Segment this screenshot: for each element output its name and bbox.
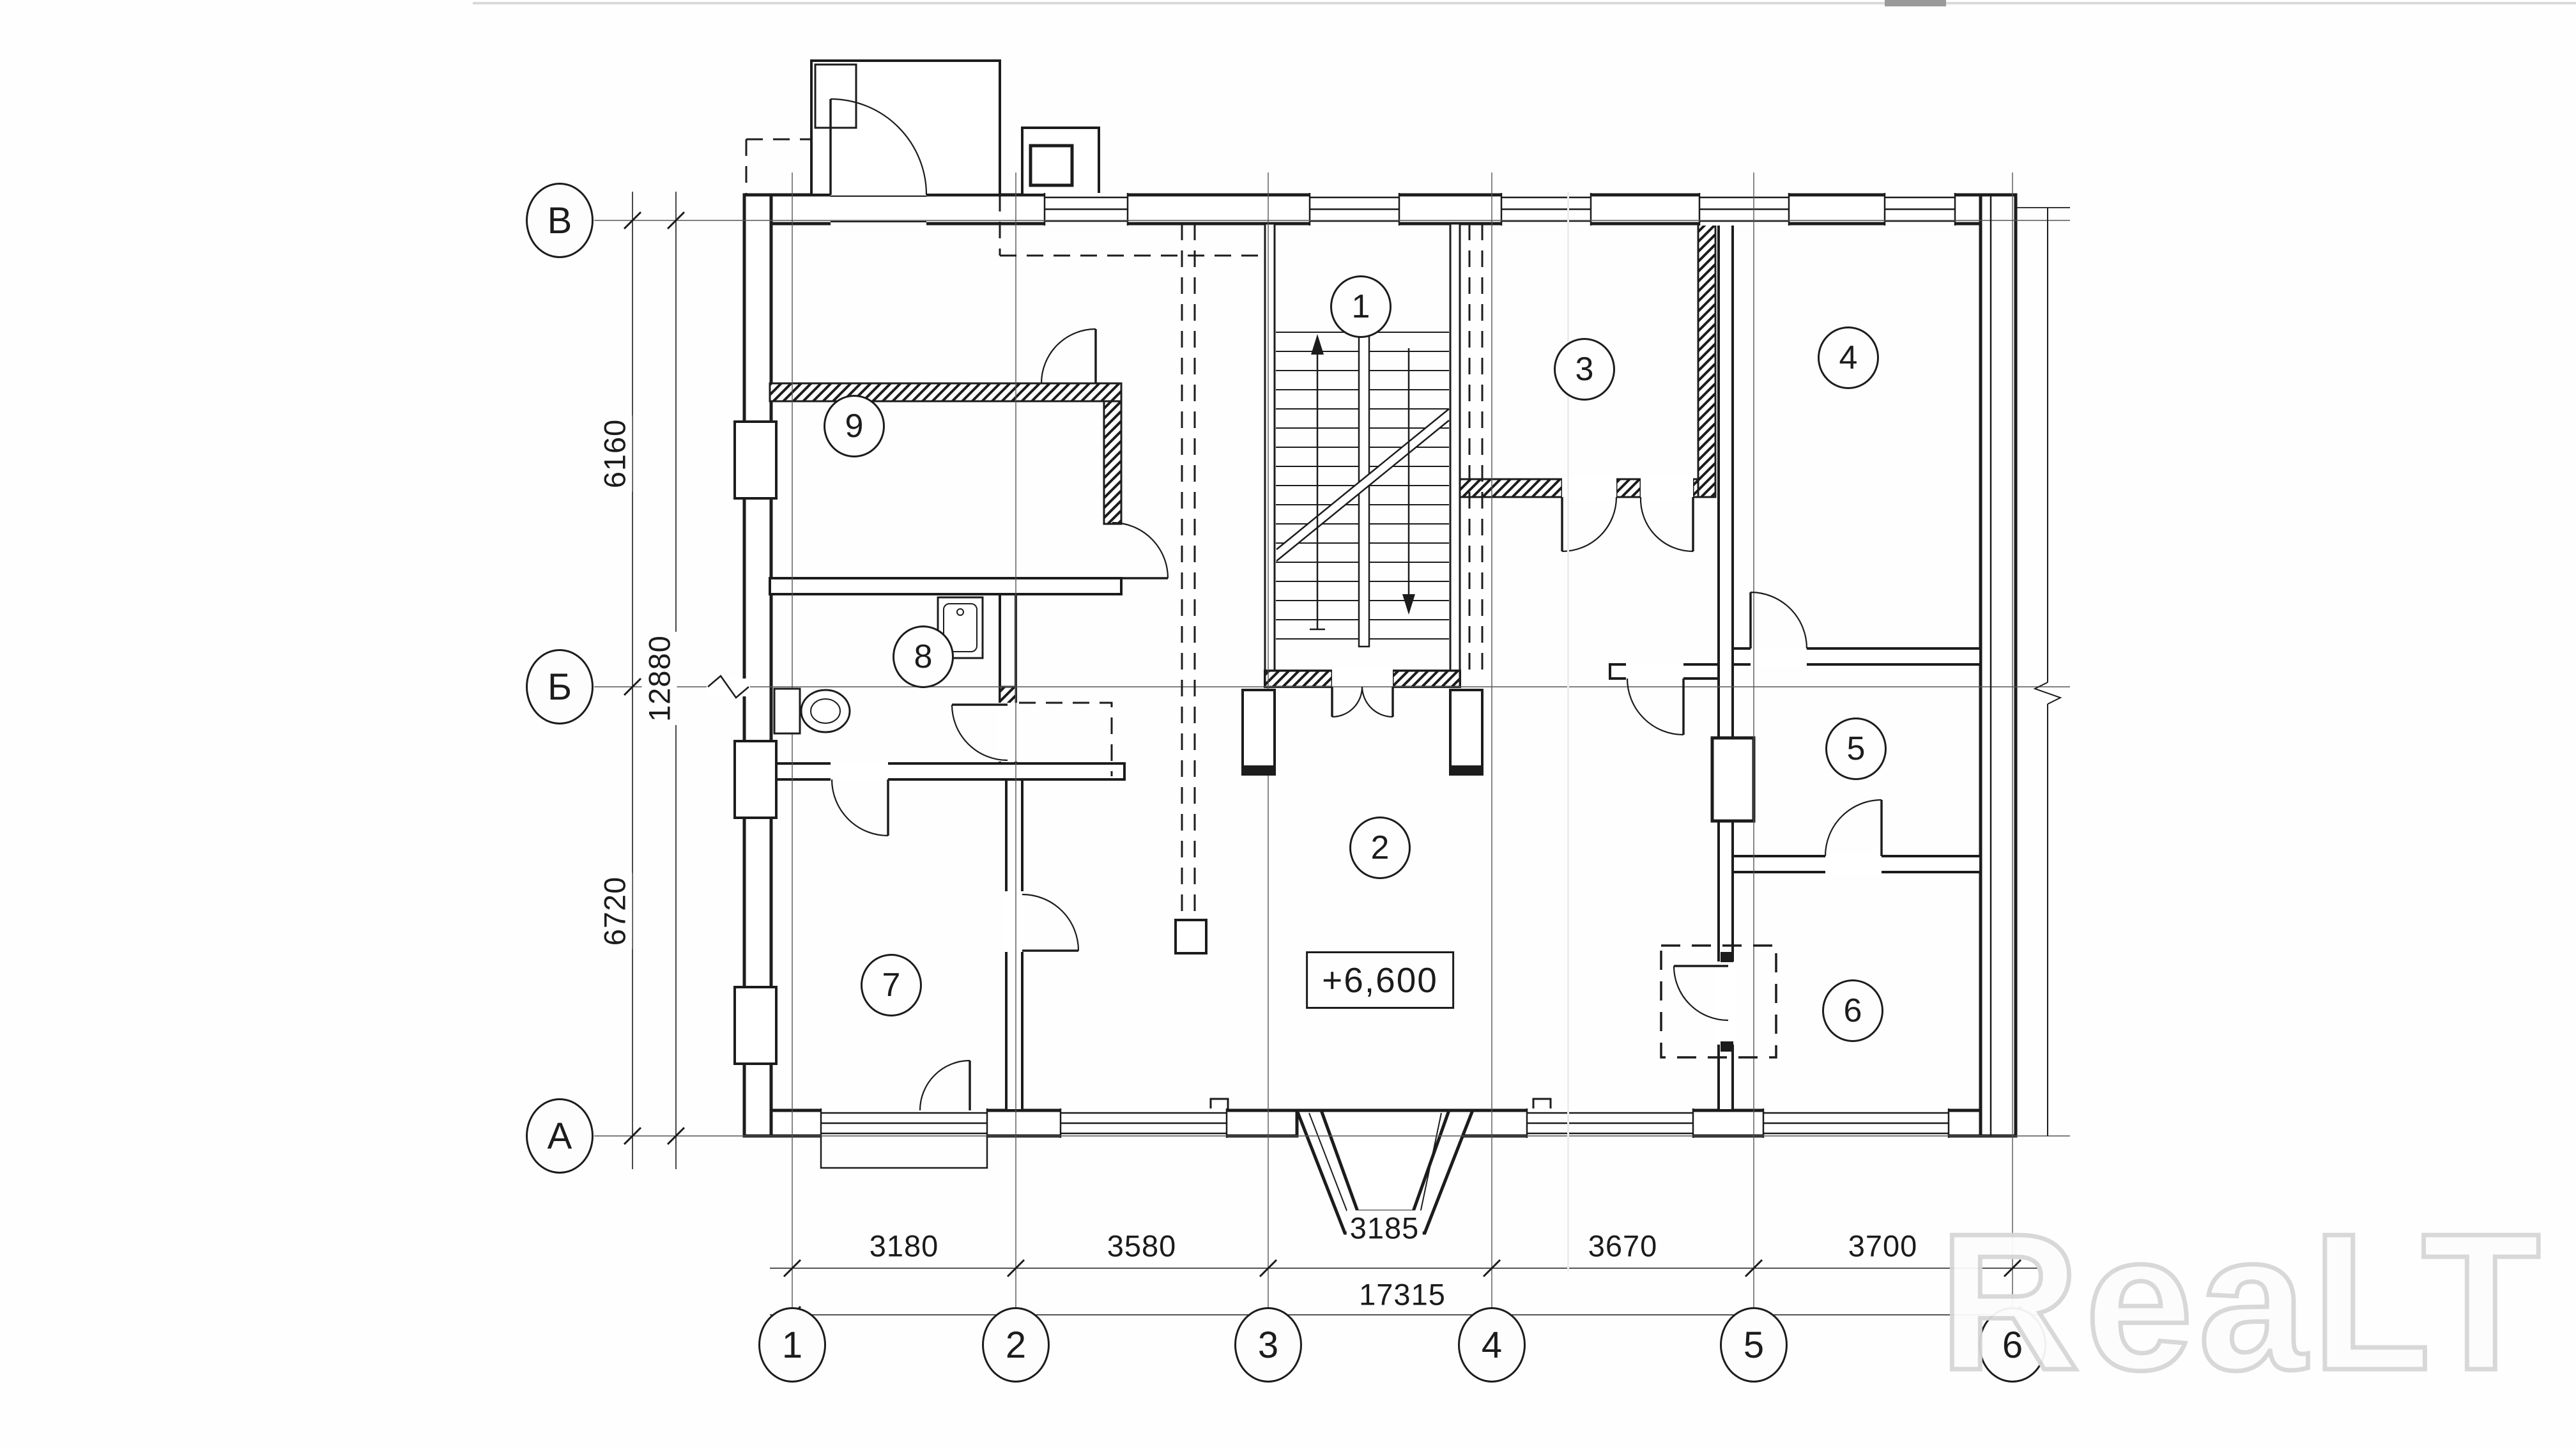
- dim-bottom-3670: 3670: [1585, 1229, 1661, 1264]
- axis-bubble-А: А: [526, 1098, 594, 1174]
- elevation-mark: +6,600: [1306, 951, 1454, 1009]
- room-label-3: 3: [1554, 338, 1615, 401]
- staircase: [1276, 319, 1449, 647]
- dim-left-12880: 12880: [642, 632, 677, 725]
- dim-left-6720: 6720: [597, 873, 632, 949]
- room-label-9: 9: [824, 395, 885, 457]
- dashed-overhead-lines: [746, 139, 1776, 1057]
- dim-bottom-total: 17315: [1356, 1277, 1449, 1312]
- dim-bottom-3580: 3580: [1104, 1229, 1180, 1264]
- axis-break: [707, 676, 750, 698]
- dim-left-6160: 6160: [597, 416, 632, 492]
- room-label-7: 7: [861, 954, 922, 1016]
- dim-bottom-3700: 3700: [1845, 1229, 1921, 1264]
- room-label-1: 1: [1330, 275, 1391, 338]
- axis-bubble-Б: Б: [526, 649, 594, 724]
- room-label-4: 4: [1818, 326, 1879, 389]
- axis-bubble-4: 4: [1458, 1307, 1526, 1383]
- axis-bubble-В: В: [526, 183, 594, 258]
- wall-stub-caps: [1243, 765, 1482, 774]
- toilet: [774, 689, 850, 733]
- dim-bottom-3180: 3180: [866, 1229, 942, 1264]
- dim-bottom-3185: 3185: [1347, 1211, 1423, 1246]
- room-label-8: 8: [893, 625, 954, 688]
- wall-stubs: [1176, 690, 1482, 953]
- watermark-realt: ReaLT: [1939, 1190, 2546, 1414]
- axis-bubble-3: 3: [1234, 1307, 1302, 1383]
- bottom-niche: [821, 1136, 987, 1168]
- room-label-6: 6: [1822, 979, 1883, 1042]
- axis-bubble-5: 5: [1720, 1307, 1788, 1383]
- room-label-5: 5: [1825, 717, 1887, 780]
- axis-bubble-2: 2: [982, 1307, 1050, 1383]
- scan-artifacts: [473, 0, 2576, 1271]
- floor-plan-scan: ВБА1234561234567893180358031853670370017…: [0, 0, 2576, 1449]
- axis-bubble-1: 1: [758, 1307, 826, 1383]
- room-label-2: 2: [1349, 816, 1411, 879]
